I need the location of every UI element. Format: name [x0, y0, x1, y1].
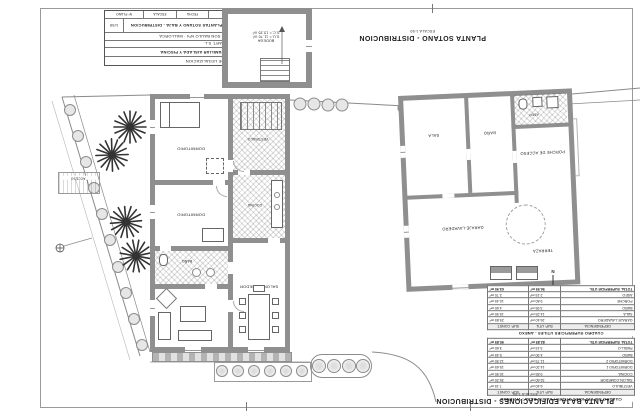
stairs — [240, 102, 282, 130]
table-cell: 9.80 m² — [528, 298, 560, 304]
table-cell: 10.90 m² — [488, 370, 529, 376]
window-opening — [150, 120, 155, 134]
table-cell: SALON-COMEDOR — [561, 376, 635, 382]
shrub — [356, 359, 370, 373]
table-cell: 32.60 m² — [528, 376, 560, 382]
shrub — [232, 365, 244, 377]
table-cell: TOTAL SUPERFICIE UTIL — [561, 339, 635, 345]
room-label-dormitorio1: DORMITORIO — [163, 146, 219, 151]
table-cell: 14.20 m² — [528, 364, 560, 370]
table-cell: PASILLO — [561, 345, 635, 351]
annex-plan: ASEO SALA BAÑO PORCHE DE ACCESO GARAJE-L… — [398, 88, 580, 291]
planter — [516, 266, 538, 280]
shrub — [296, 365, 308, 377]
window-opening — [150, 300, 155, 316]
washbasin — [546, 96, 559, 109]
table-cell: 14.25 m² — [528, 311, 560, 317]
window-opening — [404, 226, 410, 238]
table-cell: DORMITORIO 1 — [561, 364, 635, 370]
basement-plan: BODEGA S.U.= 11.70 m² S.C.= 15.35 m² — [222, 8, 312, 88]
room-label-vestibulo: VESTIBULO — [236, 136, 280, 140]
table-row: BAÑO3.95 m²4.60 m² — [488, 304, 635, 310]
window-opening — [400, 146, 406, 158]
shrub — [312, 359, 326, 373]
ground-floor-title: PLANTA BAJA EDIFICACIONES - DISTRIBUCION… — [430, 384, 620, 405]
table-cell: 3.60 m² — [488, 345, 529, 351]
table-cell: 82.85 m² — [528, 339, 560, 345]
toilet — [518, 98, 527, 109]
sofa — [158, 312, 171, 340]
table-row: SALA14.25 m²15.90 m² — [488, 311, 635, 317]
chair — [253, 285, 265, 292]
table-cell: 15.90 m² — [488, 311, 529, 317]
basement-title-text: PLANTA SOTANO - DISTRIBUCION — [330, 33, 515, 42]
sink — [274, 192, 280, 198]
wardrobe — [202, 228, 224, 242]
window-opening — [190, 94, 204, 99]
table-row: DORMITORIO 211.75 m²12.90 m² — [488, 357, 635, 363]
dining-table — [248, 294, 270, 340]
planter — [490, 266, 512, 280]
bed-pillow — [169, 102, 170, 128]
north-letter: N — [544, 269, 562, 274]
basement-title: PLANTA SOTANO - DISTRIBUCION ESCALA 1:50 — [330, 22, 515, 42]
chair — [239, 326, 246, 333]
table-cell: 29.85 m² — [488, 317, 529, 323]
shrub — [327, 359, 341, 373]
chair — [239, 312, 246, 319]
table-row: COCINA9.85 m²10.90 m² — [488, 370, 635, 376]
table-row: GARAJE-LAVADERO26.40 m²29.85 m² — [488, 317, 635, 323]
table-cell: 90.85 m² — [488, 339, 529, 345]
table-cell: 63.50 m² — [488, 286, 529, 292]
table-cell: BAÑO — [561, 304, 635, 310]
table-cell: 12.90 m² — [488, 357, 529, 363]
drawing-sheet: EXPEDIENTE DE LEGALIZACION VIVIENDA UNIF… — [0, 0, 640, 416]
table-cell: 35.20 m² — [488, 376, 529, 382]
stamp-field: ESCALA — [143, 11, 176, 18]
area-table: DEPENDENCIASUP. UTILSUP. CONST.GARAJE-LA… — [487, 285, 635, 330]
table-cell: 4.90 m² — [528, 351, 560, 357]
table-row: ASEO2.15 m²2.70 m² — [488, 292, 635, 298]
room-label-bodega: BODEGA S.U.= 11.70 m² S.C.= 15.35 m² — [236, 30, 296, 42]
palm-tree — [114, 111, 146, 143]
toilet — [159, 254, 168, 266]
shrub — [248, 365, 260, 377]
table-cell: SALA — [561, 311, 635, 317]
table-cell: TOTAL SUPERFICIE UTIL — [561, 286, 635, 292]
table-cell: 2.15 m² — [528, 292, 560, 298]
table-row: TOTAL SUPERFICIE UTIL56.55 m²63.50 m² — [488, 286, 635, 292]
door-opening — [306, 40, 312, 52]
sheet-scale: 1/50 — [105, 19, 123, 32]
palm-tree — [91, 134, 132, 175]
stamp-field: Nº PLANO — [105, 11, 143, 18]
wardrobe — [206, 158, 224, 174]
table-row: BAÑO4.90 m²5.45 m² — [488, 351, 635, 357]
table-row: PASILLO3.15 m²3.60 m² — [488, 345, 635, 351]
shrub — [342, 359, 356, 373]
porch — [152, 352, 292, 362]
room-label-bano: BAÑO — [172, 258, 202, 262]
table-cell: 11.75 m² — [528, 357, 560, 363]
table-header-cell: SUP. CONST. — [488, 323, 529, 329]
table-row: DORMITORIO 114.20 m²15.65 m² — [488, 364, 635, 370]
basement-scale-text: ESCALA 1:50 — [330, 29, 515, 33]
table-cell: 3.15 m² — [528, 345, 560, 351]
table-row: TOTAL SUPERFICIE UTIL82.85 m²90.85 m² — [488, 339, 635, 345]
table-cell: 10.45 m² — [488, 298, 529, 304]
table-header-cell: DEPENDENCIA — [561, 323, 635, 329]
room-label-cocina: COCINA — [238, 202, 272, 206]
table-cell: 9.85 m² — [528, 370, 560, 376]
sheet-title: PLANTAS SOTANO Y BAJA - DISTRIBUCION — [123, 19, 229, 32]
table-cell: GARAJE-LAVADERO — [561, 317, 635, 323]
table-cell: 26.40 m² — [528, 317, 560, 323]
stove-burner — [274, 204, 280, 210]
table-cell: 15.65 m² — [488, 364, 529, 370]
table-header-cell: SUP. UTIL — [528, 323, 560, 329]
table-cell: 2.70 m² — [488, 292, 529, 298]
sink — [192, 268, 201, 277]
table-cell: 56.55 m² — [528, 286, 560, 292]
window-opening — [150, 205, 155, 219]
coffee-table — [180, 306, 206, 322]
stamp-field: FECHA — [176, 11, 209, 18]
table-cell: 5.45 m² — [488, 351, 529, 357]
garden-access-label: ACCESO — [60, 176, 96, 180]
table-cell: 3.95 m² — [528, 304, 560, 310]
chair — [272, 326, 279, 333]
table-cell: COCINA — [561, 370, 635, 376]
bed — [160, 102, 200, 128]
door-opening — [452, 284, 468, 290]
table-cell: 4.60 m² — [488, 304, 529, 310]
sink — [206, 268, 215, 277]
table-cell: DORMITORIO 2 — [561, 357, 635, 363]
sofa — [178, 330, 212, 341]
chair — [272, 312, 279, 319]
ground-floor-title-text: PLANTA BAJA EDIFICACIONES - DISTRIBUCION — [430, 396, 620, 405]
area-table-anexo: CUADRO SUPERFICIES UTILES - ANEXO DEPEND… — [487, 285, 635, 336]
room-label-porche: PORCHE DE ACCESO — [519, 149, 567, 156]
table-row: SALON-COMEDOR32.60 m²35.20 m² — [488, 376, 635, 382]
shrub — [280, 365, 292, 377]
table-row: PORCHE9.80 m²10.45 m² — [488, 298, 635, 304]
shrub — [216, 365, 228, 377]
chair — [272, 298, 279, 305]
table-cell: PORCHE — [561, 298, 635, 304]
table-cell: ASEO — [561, 292, 635, 298]
area-table-anexo-title: CUADRO SUPERFICIES UTILES - ANEXO — [487, 331, 635, 336]
room-label-dormitorio2: DORMITORIO — [163, 212, 219, 217]
table-cell: BAÑO — [561, 351, 635, 357]
washbasin — [532, 97, 542, 107]
shrub — [264, 365, 276, 377]
